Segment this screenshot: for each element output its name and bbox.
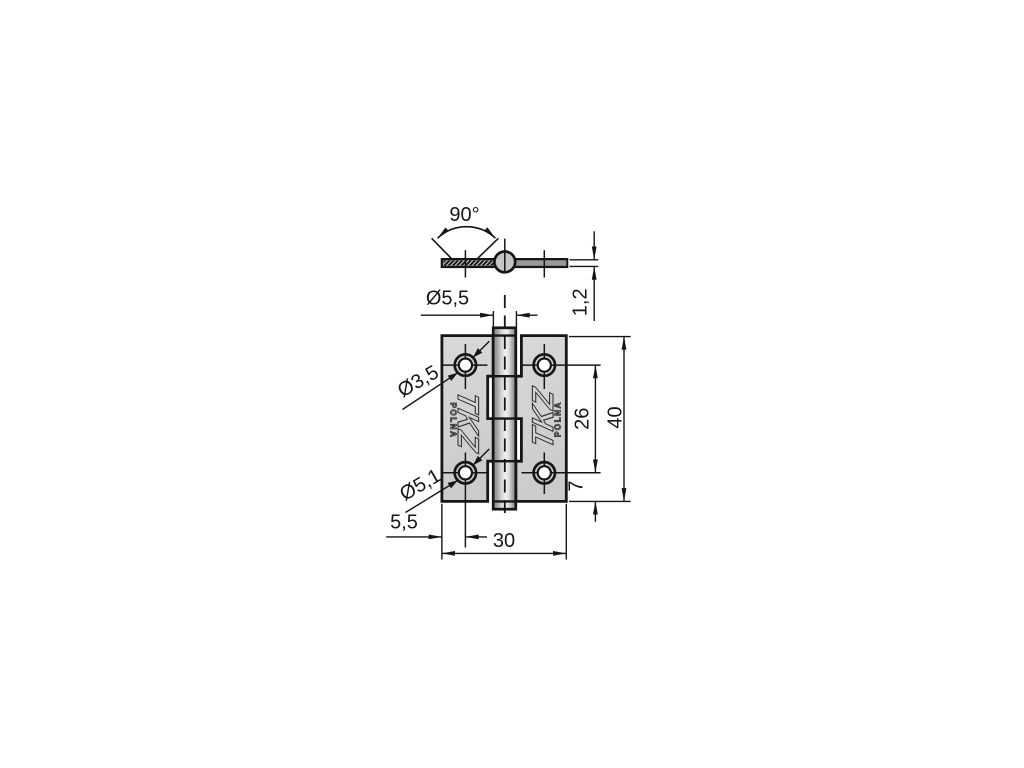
svg-text:90°: 90° [449,204,479,226]
svg-text:Ø3,5: Ø3,5 [394,361,443,402]
svg-text:Ø5,5: Ø5,5 [426,287,469,309]
svg-text:POLNA: POLNA [554,401,563,437]
svg-text:1,2: 1,2 [569,288,591,316]
svg-text:Ø5,1: Ø5,1 [396,465,445,506]
svg-text:26: 26 [572,408,594,430]
svg-text:5,5: 5,5 [390,511,418,533]
svg-text:7: 7 [566,480,588,491]
svg-text:40: 40 [605,406,627,428]
svg-text:POLNA: POLNA [449,403,458,439]
svg-text:30: 30 [493,530,515,552]
